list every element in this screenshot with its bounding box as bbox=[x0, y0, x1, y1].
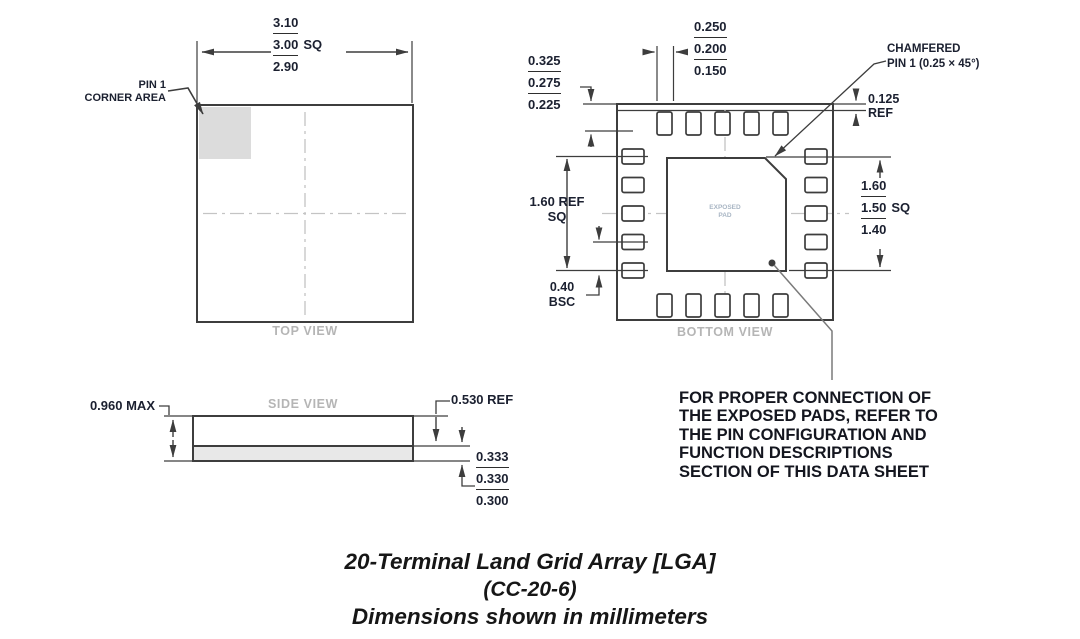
pad-span-suffix: SQ bbox=[518, 210, 596, 225]
caption-title: 20-Terminal Land Grid Array [LGA] bbox=[240, 548, 820, 576]
dim-min: 0.150 bbox=[694, 64, 727, 81]
pitch-dimension: 0.40 BSC bbox=[540, 280, 584, 310]
exposed-pad-note: FOR PROPER CONNECTION OF THE EXPOSED PAD… bbox=[679, 389, 938, 481]
rim-dim-value: 0.125 bbox=[868, 92, 899, 106]
chamfer-pin1-note: CHAMFERED PIN 1 (0.25 × 45°) bbox=[887, 42, 980, 71]
pin1-corner-label: PIN 1 CORNER AREA bbox=[50, 79, 166, 104]
dim-max: 3.10 bbox=[273, 16, 298, 34]
height-dimension: 0.960 MAX bbox=[58, 398, 155, 413]
pitch-suffix: BSC bbox=[540, 295, 584, 310]
dim-min: 1.40 bbox=[861, 223, 886, 240]
side-view-pad-strip bbox=[193, 446, 413, 461]
edge-to-pad-dimension: 0.325 0.275 0.225 bbox=[528, 54, 561, 119]
pin1-corner-shade bbox=[199, 107, 251, 159]
exposed-pad-dimension: 1.60 1.50SQ 1.40 bbox=[861, 179, 910, 244]
side-view-label: SIDE VIEW bbox=[193, 397, 413, 411]
dim-max: 0.325 bbox=[528, 54, 561, 72]
top-view-width-dimension: 3.10 3.00SQ 2.90 bbox=[273, 16, 322, 81]
caption-package-code: (CC-20-6) bbox=[240, 576, 820, 604]
dim-max: 0.250 bbox=[694, 20, 727, 38]
chamfer-note-line2: PIN 1 (0.25 × 45°) bbox=[887, 57, 980, 72]
rim-dim-suffix: REF bbox=[868, 106, 899, 120]
dim-max: 1.60 bbox=[861, 179, 886, 197]
side-view-drawing bbox=[159, 401, 475, 486]
dim-suffix: SQ bbox=[303, 38, 322, 52]
top-view-label: TOP VIEW bbox=[197, 324, 413, 338]
pin1-label-line2: CORNER AREA bbox=[50, 92, 166, 105]
pad-height-dimension: 0.333 0.330 0.300 bbox=[476, 450, 509, 515]
pad-span-value: 1.60 REF bbox=[518, 195, 596, 210]
exposed-pad-label: EXPOSED PAD bbox=[695, 204, 755, 219]
pin1-label-line1: PIN 1 bbox=[50, 79, 166, 92]
pad-width-dimension: 0.250 0.200 0.150 bbox=[694, 20, 727, 85]
bottom-view-label: BOTTOM VIEW bbox=[617, 325, 833, 339]
dim-nom: 1.50 bbox=[861, 201, 886, 219]
pad-span-dimension: 1.60 REF SQ bbox=[518, 195, 596, 224]
dim-nom: 0.330 bbox=[476, 472, 509, 490]
figure-caption: 20-Terminal Land Grid Array [LGA] (CC-20… bbox=[240, 548, 820, 631]
dim-nom: 0.275 bbox=[528, 76, 561, 94]
dim-min: 2.90 bbox=[273, 60, 298, 77]
package-drawing-page: 3.10 3.00SQ 2.90 PIN 1 CORNER AREA TOP V… bbox=[0, 0, 1080, 639]
dim-nom: 3.00 bbox=[273, 38, 298, 56]
pitch-value: 0.40 bbox=[540, 280, 584, 295]
caption-units: Dimensions shown in millimeters bbox=[240, 603, 820, 631]
exposed-pad-label-line1: EXPOSED bbox=[695, 204, 755, 212]
dim-max: 0.333 bbox=[476, 450, 509, 468]
body-thickness-dimension: 0.530 REF bbox=[451, 392, 513, 407]
dim-min: 0.300 bbox=[476, 494, 509, 511]
dim-suffix: SQ bbox=[891, 201, 910, 215]
rim-dimension: 0.125 REF bbox=[868, 92, 899, 120]
dim-nom: 0.200 bbox=[694, 42, 727, 60]
side-view-body bbox=[193, 416, 413, 446]
dim-min: 0.225 bbox=[528, 98, 561, 115]
chamfer-note-line1: CHAMFERED bbox=[887, 42, 980, 57]
top-view-drawing bbox=[168, 41, 413, 322]
exposed-pad-label-line2: PAD bbox=[695, 212, 755, 220]
